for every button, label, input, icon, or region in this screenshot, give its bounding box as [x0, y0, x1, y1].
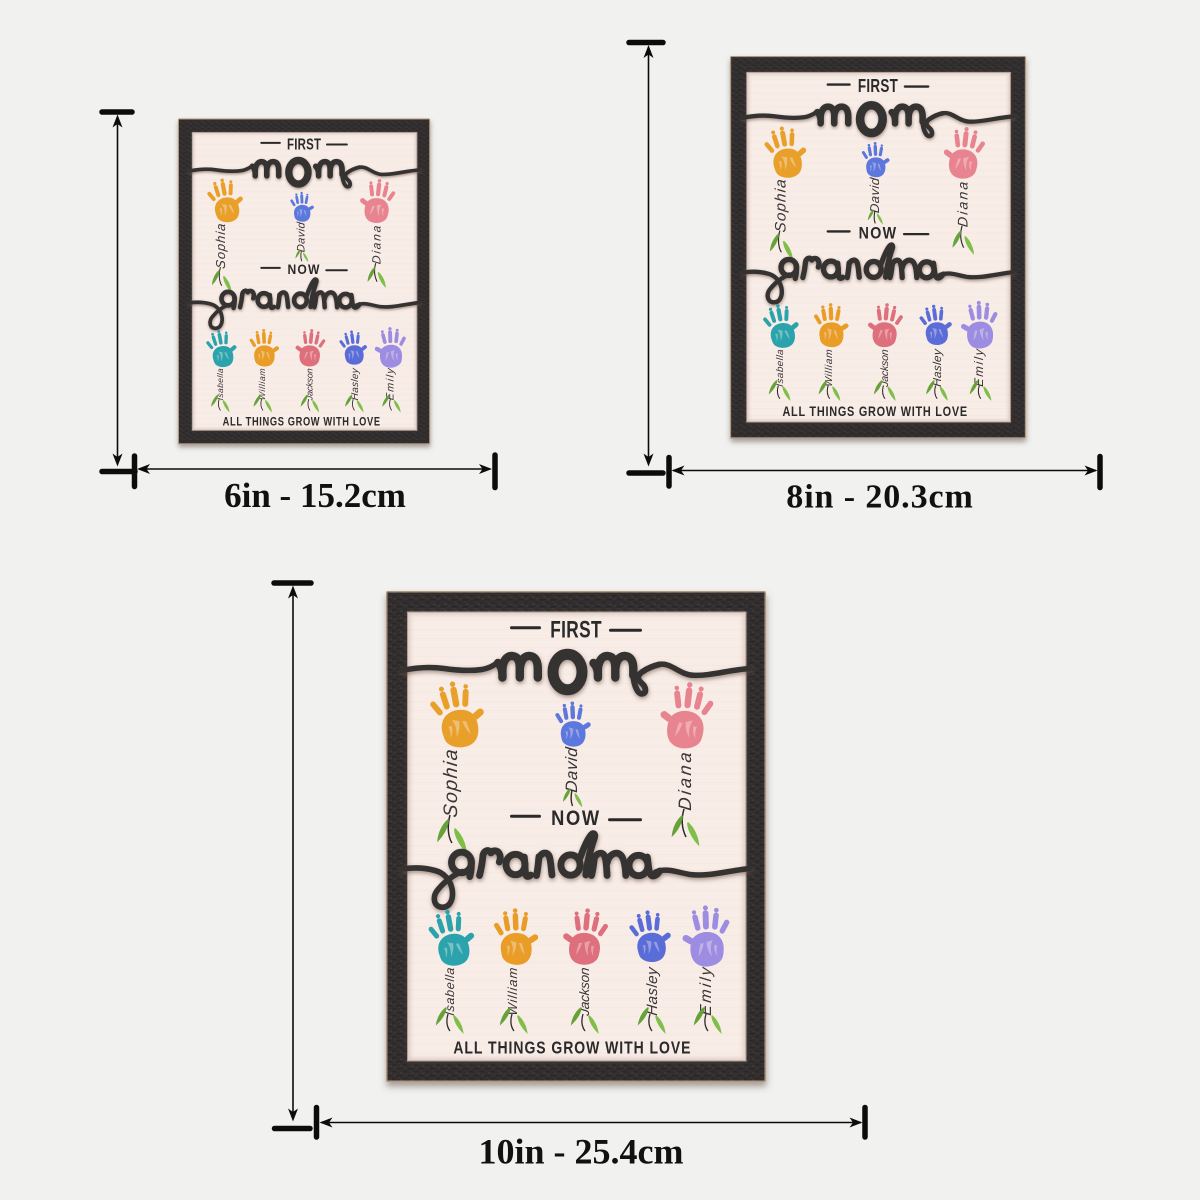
svg-text:10in - 25.4cm: 10in - 25.4cm [479, 1132, 684, 1172]
svg-text:8in - 20.3cm: 8in - 20.3cm [786, 479, 973, 516]
svg-text:6in - 15.2cm: 6in - 15.2cm [224, 476, 406, 515]
